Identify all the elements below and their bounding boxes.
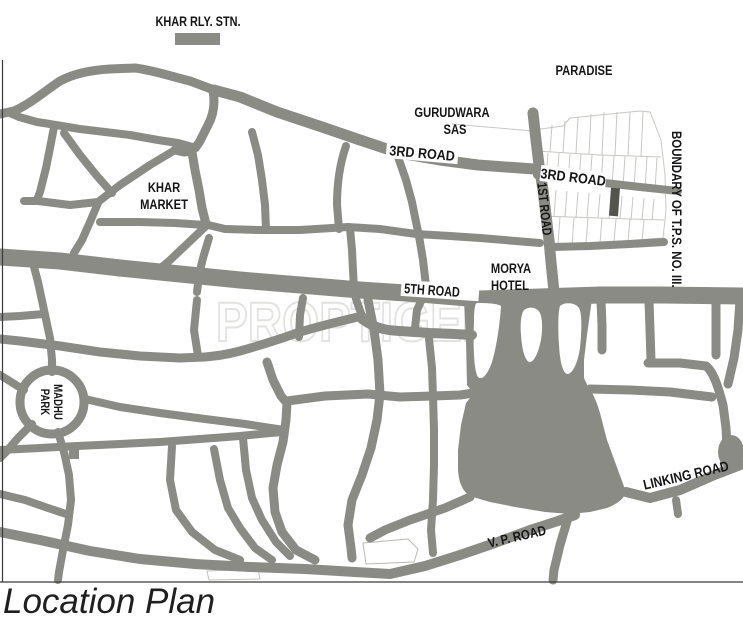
svg-text:KHAR: KHAR — [148, 180, 180, 195]
svg-text:GURUDWARA: GURUDWARA — [414, 105, 489, 120]
svg-text:HOTEL: HOTEL — [491, 278, 529, 293]
svg-text:BOUNDARY OF T.P.S. NO. III.: BOUNDARY OF T.P.S. NO. III. — [669, 131, 685, 288]
svg-text:MADHU: MADHU — [51, 384, 64, 420]
svg-text:MARKET: MARKET — [140, 197, 188, 212]
svg-text:PARK: PARK — [38, 389, 51, 416]
svg-text:Location Plan: Location Plan — [3, 582, 215, 621]
svg-text:MORYA: MORYA — [491, 261, 531, 276]
svg-text:KHAR RLY. STN.: KHAR RLY. STN. — [155, 14, 240, 30]
svg-text:SAS: SAS — [444, 122, 467, 137]
svg-text:PARADISE: PARADISE — [556, 63, 613, 78]
